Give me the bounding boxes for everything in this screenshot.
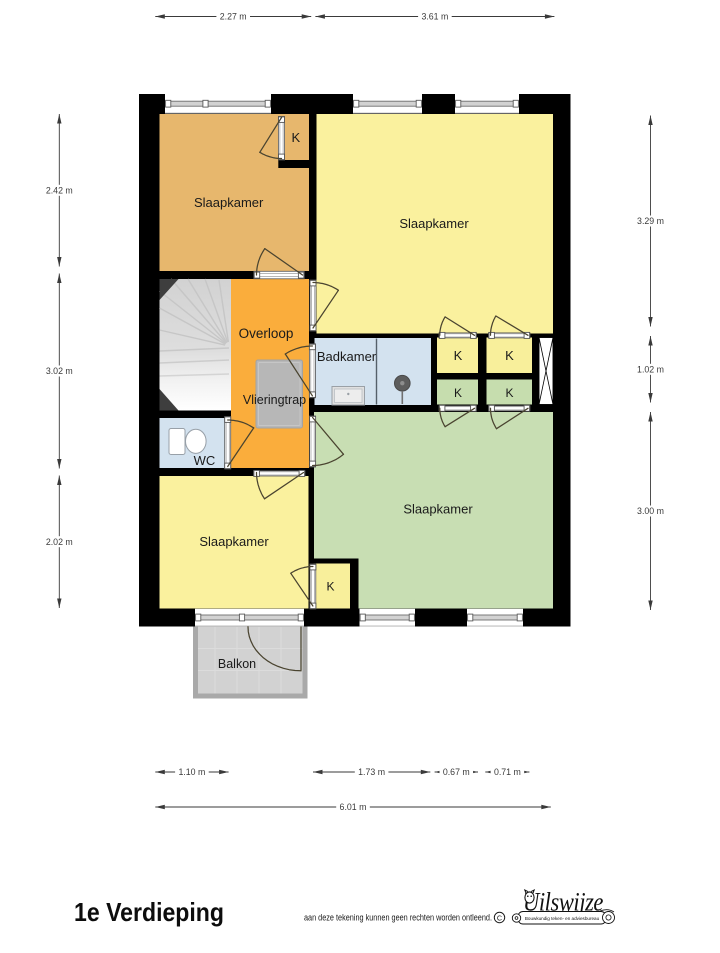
svg-text:Vlieringtrap: Vlieringtrap — [243, 393, 306, 407]
svg-text:1.73 m: 1.73 m — [358, 767, 385, 777]
svg-text:2.42 m: 2.42 m — [46, 185, 73, 195]
svg-text:K: K — [505, 348, 514, 363]
svg-text:Balkon: Balkon — [218, 657, 256, 671]
svg-text:C: C — [497, 914, 502, 923]
svg-text:6.01 m: 6.01 m — [340, 802, 367, 812]
svg-text:K: K — [326, 580, 334, 594]
svg-text:1.02 m: 1.02 m — [637, 364, 664, 374]
svg-text:2.27 m: 2.27 m — [220, 12, 247, 22]
svg-text:Overloop: Overloop — [239, 326, 294, 341]
svg-text:Badkamer: Badkamer — [317, 349, 377, 364]
svg-text:0.67 m: 0.67 m — [443, 767, 470, 777]
svg-text:aan deze tekening kunnen geen: aan deze tekening kunnen geen rechten wo… — [304, 913, 492, 923]
svg-text:1e Verdieping: 1e Verdieping — [74, 897, 224, 927]
svg-text:1.10 m: 1.10 m — [178, 767, 205, 777]
svg-text:K: K — [291, 130, 300, 145]
svg-text:K: K — [454, 386, 462, 400]
svg-text:3.00 m: 3.00 m — [637, 506, 664, 516]
svg-text:WC: WC — [194, 453, 216, 468]
svg-text:0.71 m: 0.71 m — [494, 767, 521, 777]
svg-text:2.02 m: 2.02 m — [46, 537, 73, 547]
svg-text:K: K — [454, 348, 463, 363]
svg-text:3.02 m: 3.02 m — [46, 366, 73, 376]
svg-text:Slaapkamer: Slaapkamer — [194, 195, 264, 210]
svg-text:Slaapkamer: Slaapkamer — [199, 534, 269, 549]
svg-text:Bouwkundig teken- en adviesbur: Bouwkundig teken- en adviesbureau — [525, 916, 600, 921]
svg-text:Slaapkamer: Slaapkamer — [399, 216, 469, 231]
svg-text:3.29 m: 3.29 m — [637, 216, 664, 226]
svg-text:K: K — [505, 386, 513, 400]
svg-text:3.61 m: 3.61 m — [421, 12, 448, 22]
svg-text:Slaapkamer: Slaapkamer — [403, 502, 473, 517]
